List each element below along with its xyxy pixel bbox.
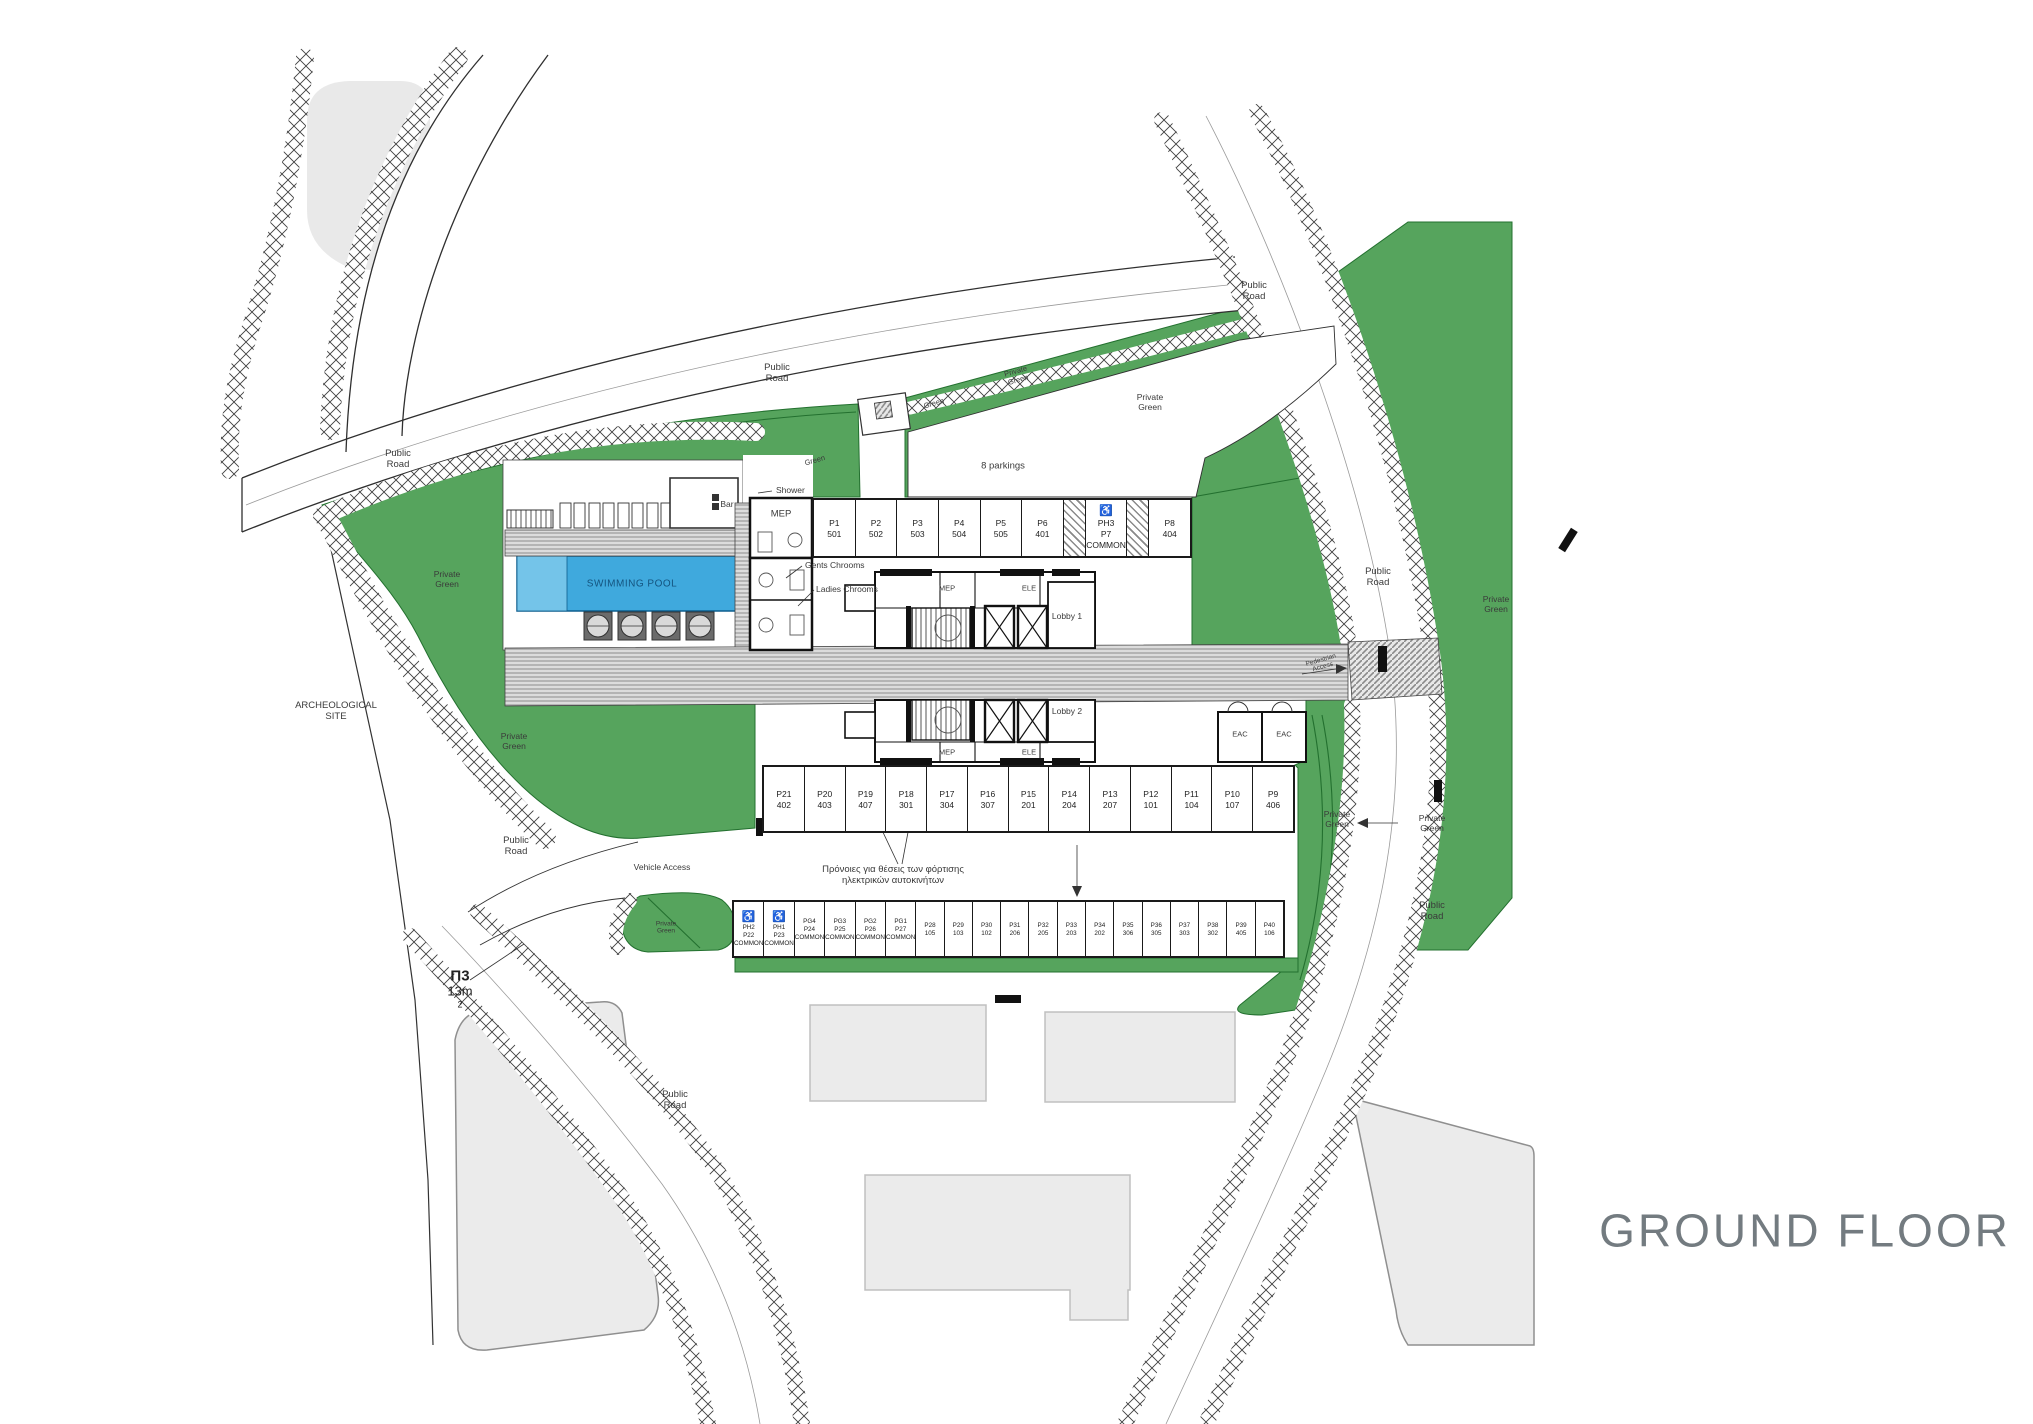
public-road-label: PublicRoad: [662, 1090, 688, 1112]
parking-stall: P20403: [805, 767, 846, 831]
parking-stall: PG2P26COMMON: [856, 902, 886, 956]
parking-stall: P32205: [1029, 902, 1057, 956]
parking-stall: P15201: [1009, 767, 1050, 831]
parking-stall: P10107: [1212, 767, 1253, 831]
eac-label: EAC: [1232, 731, 1247, 740]
parking-hatch-zone: [1064, 500, 1086, 556]
parking-stall: P38302: [1199, 902, 1227, 956]
public-road-label: PublicRoad: [764, 363, 790, 385]
private-green-label: PrivateGreen: [1324, 810, 1350, 830]
eac-label: EAC: [1276, 731, 1291, 740]
parking-stall: P39405: [1227, 902, 1255, 956]
parking-stall: P2502: [856, 500, 898, 556]
ev-charging-note: Πρόνοιες για θέσεις των φόρτισηςηλεκτρικ…: [822, 865, 964, 887]
parking-stall: P31206: [1001, 902, 1029, 956]
private-green-label: PrivateGreen: [656, 921, 676, 936]
parking-stall: P33203: [1058, 902, 1086, 956]
site-plan: P1501P2502P3503P4504P5505P6401♿PH3P7COMM…: [0, 0, 2033, 1424]
parkings-count-label: 8 parkings: [981, 462, 1025, 473]
parking-stall: P21402: [764, 767, 805, 831]
changing-rooms: [750, 558, 812, 650]
parking-stall: P4504: [939, 500, 981, 556]
parking-stall: P5505: [981, 500, 1023, 556]
private-green-label: PrivateGreen: [1419, 814, 1445, 834]
vehicle-access-label: Vehicle Access: [634, 863, 691, 873]
ladies-changing-label: Ladies Chrooms: [816, 585, 878, 595]
handicap-icon: ♿: [1099, 506, 1113, 517]
parking-stall: P30102: [973, 902, 1001, 956]
parking-stall: P13207: [1090, 767, 1131, 831]
handicap-icon: ♿: [772, 912, 786, 923]
bar-label: Bar: [720, 500, 733, 510]
parking-stall: P36305: [1143, 902, 1171, 956]
parking-stall: PG4P24COMMON: [795, 902, 825, 956]
mep-label: MEP: [771, 510, 792, 521]
parking-stall: P40106: [1256, 902, 1283, 956]
archeological-site-label: ARCHEOLOGICALSITE: [295, 701, 377, 723]
parking-stall: P8404: [1149, 500, 1190, 556]
plot-label: Π3 13m2: [447, 967, 472, 1016]
handicap-icon: ♿: [742, 912, 756, 923]
ele-label: ELE: [1022, 585, 1036, 594]
parking-stall: P34202: [1086, 902, 1114, 956]
parking-stall: P12101: [1131, 767, 1172, 831]
public-road-label: PublicRoad: [1365, 567, 1391, 589]
parking-stall: P29103: [945, 902, 973, 956]
mep-room: [750, 498, 812, 558]
parking-stall: ♿PH3P7COMMON: [1086, 500, 1128, 556]
parking-stall: ♿PH1P23COMMON: [764, 902, 794, 956]
lobby-1-label: Lobby 1: [1052, 612, 1082, 622]
parking-stall: P6401: [1022, 500, 1064, 556]
public-road-label: PublicRoad: [1419, 901, 1445, 923]
parking-stall: P17304: [927, 767, 968, 831]
mep-label: MEP: [939, 749, 955, 758]
parking-stall: P3503: [897, 500, 939, 556]
parking-stall: P14204: [1049, 767, 1090, 831]
parking-stall: ♿PH2P22COMMON: [734, 902, 764, 956]
private-green-label: PrivateGreen: [501, 732, 527, 752]
parking-stall: PG3P25COMMON: [825, 902, 855, 956]
parking-stall: P28105: [916, 902, 944, 956]
private-green-label: PrivateGreen: [1483, 595, 1509, 615]
parking-row-middle: P21402P20403P19407P18301P17304P16307P152…: [762, 765, 1295, 833]
public-road-label: PublicRoad: [1241, 281, 1267, 303]
lobby-2-label: Lobby 2: [1052, 707, 1082, 717]
ele-label: ELE: [1022, 749, 1036, 758]
public-road-label: PublicRoad: [503, 836, 529, 858]
shower-label: Shower: [776, 486, 805, 496]
swimming-pool-label: SWIMMING POOL: [587, 578, 677, 590]
parking-stall: PG1P27COMMON: [886, 902, 916, 956]
mep-label: MEP: [939, 585, 955, 594]
gents-changing-label: Gents Chrooms: [805, 561, 865, 571]
private-green-label: PrivateGreen: [1137, 393, 1163, 413]
parking-row-bottom: ♿PH2P22COMMON♿PH1P23COMMONPG4P24COMMONPG…: [732, 900, 1285, 958]
parking-stall: P18301: [886, 767, 927, 831]
parking-stall: P35306: [1114, 902, 1142, 956]
crosswalk: [1348, 638, 1442, 700]
pergola: [507, 510, 553, 528]
parking-stall: P16307: [968, 767, 1009, 831]
pedestrian-walkway: [505, 644, 1348, 706]
parking-row-top: P1501P2502P3503P4504P5505P6401♿PH3P7COMM…: [812, 498, 1192, 558]
parking-hatch-zone: [1127, 500, 1149, 556]
parking-stall: P1501: [814, 500, 856, 556]
parking-stall: P11104: [1172, 767, 1213, 831]
parking-stall: P37303: [1171, 902, 1199, 956]
private-green-label: PrivateGreen: [434, 570, 460, 590]
public-road-label: PublicRoad: [385, 449, 411, 471]
parking-stall: P9406: [1253, 767, 1293, 831]
parking-stall: P19407: [846, 767, 887, 831]
ground-floor-title: GROUND FLOOR: [1599, 1205, 2011, 1258]
